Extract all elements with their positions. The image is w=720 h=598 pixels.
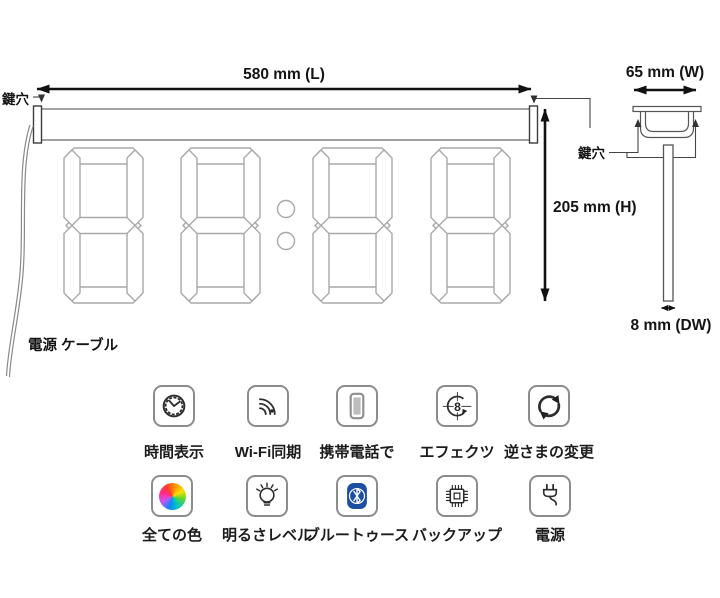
- feature-power: 電源: [490, 475, 610, 545]
- bluetooth-icon: [336, 475, 378, 517]
- digit-4: [431, 148, 510, 303]
- display-housing-bar: [41, 109, 530, 140]
- brightness-icon: [246, 475, 288, 517]
- clock-icon: [153, 385, 195, 427]
- effects-icon: 8: [436, 385, 478, 427]
- digit-3: [313, 148, 392, 303]
- keyhole-callout-line-side-left: [609, 120, 638, 153]
- keyhole-label-side: 鍵穴: [578, 145, 606, 161]
- clock-dimension-diagram: 580 mm (L) 鍵穴 電源 ケーブル 205 mm (H) 65 mm (…: [0, 0, 720, 380]
- housing-endcap-right: [530, 106, 538, 143]
- flip-rotate-icon: [528, 385, 570, 427]
- side-view-bracket: [633, 107, 701, 138]
- chip-icon: [436, 475, 478, 517]
- depth-dimension-label: 8 mm (DW): [631, 317, 712, 334]
- power-cable-label: 電源 ケーブル: [28, 336, 119, 354]
- keyhole-label-front: 鍵穴: [2, 91, 29, 107]
- keyhole-callout-line-side-right: [627, 120, 696, 158]
- side-view-panel: [664, 145, 674, 301]
- height-dimension-label: 205 mm (H): [553, 199, 637, 216]
- feature-flip-display: 逆さまの変更: [489, 385, 609, 462]
- power-plug-icon: [529, 475, 571, 517]
- endcap-callout-line: [534, 99, 590, 129]
- mobile-phone-icon: [336, 385, 378, 427]
- product-infographic: 580 mm (L) 鍵穴 電源 ケーブル 205 mm (H) 65 mm (…: [0, 0, 720, 598]
- housing-endcap-left: [34, 106, 42, 143]
- length-dimension-label: 580 mm (L): [243, 66, 325, 83]
- color-wheel-icon: [151, 475, 193, 517]
- effects-digit: 8: [454, 400, 461, 414]
- wifi-icon: [247, 385, 289, 427]
- digit-1: [64, 148, 143, 303]
- feature-label: 電源: [490, 524, 610, 545]
- colon-dots: [278, 201, 295, 250]
- digit-2: [181, 148, 260, 303]
- feature-label: 逆さまの変更: [489, 441, 609, 462]
- width-dimension-label: 65 mm (W): [626, 64, 704, 81]
- keyhole-callout-line-front: [33, 97, 42, 102]
